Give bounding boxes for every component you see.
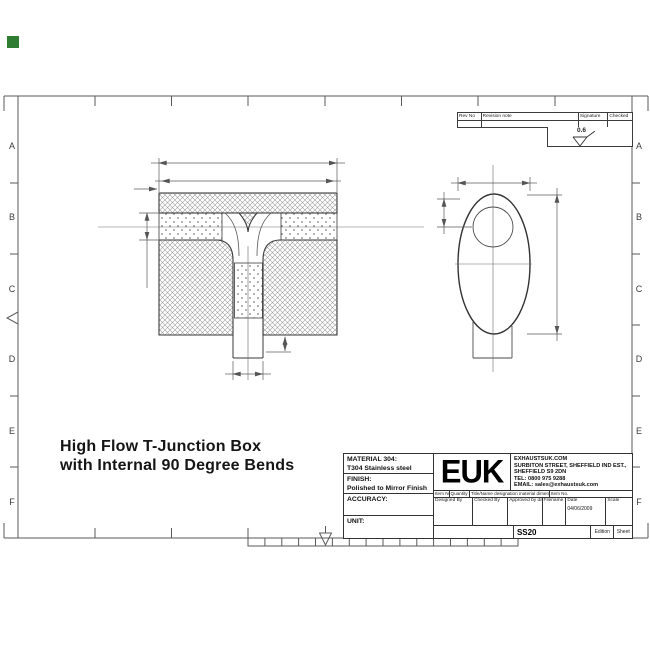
finish-cell: FINISH: Polished to Mirror Finish bbox=[344, 474, 434, 494]
row-label-c-right: C bbox=[633, 284, 645, 294]
company-email: EMAIL: sales@exhaustsuk.com bbox=[514, 482, 632, 489]
designed-by-cell: Designed By bbox=[434, 498, 473, 525]
finish-label: FINISH: bbox=[347, 476, 434, 485]
row-label-a-right: A bbox=[633, 141, 645, 151]
row-label-f-left: F bbox=[6, 497, 18, 507]
bottom-centering-mark bbox=[320, 533, 332, 545]
company-info: EXHAUSTSUK.COM SURBITON STREET, SHEFFIEL… bbox=[511, 454, 632, 491]
material-cell: MATERIAL 304: T304 Stainless steel bbox=[344, 454, 434, 474]
revision-note-header: Revision note bbox=[482, 113, 578, 121]
drawing-title-line2: with Internal 90 Degree Bends bbox=[60, 456, 294, 475]
sheet-label: Sheet bbox=[617, 529, 630, 535]
quantity-header: Quantity bbox=[450, 491, 470, 497]
row-label-f-right: F bbox=[633, 497, 645, 507]
surface-finish-box: 0.6 bbox=[547, 127, 633, 147]
edition-cell: Edition bbox=[591, 526, 614, 538]
technical-drawing-canvas bbox=[0, 0, 650, 650]
row-label-b-right: B bbox=[633, 212, 645, 222]
bottom-empty-cell bbox=[434, 526, 514, 538]
euk-logo: EUK bbox=[441, 454, 503, 491]
drawing-title-line1: High Flow T-Junction Box bbox=[60, 437, 294, 456]
row-label-d-right: D bbox=[633, 354, 645, 364]
checked-by-cell: Checked By bbox=[473, 498, 508, 525]
approved-by-cell: Approved by date bbox=[508, 498, 542, 525]
left-bore-liner bbox=[159, 213, 222, 240]
title-block: MATERIAL 304: T304 Stainless steel FINIS… bbox=[343, 453, 633, 539]
row-label-e-left: E bbox=[6, 426, 18, 436]
company-website: EXHAUSTSUK.COM bbox=[514, 456, 632, 463]
scale-cell: Scale bbox=[606, 498, 632, 525]
row-label-c-left: C bbox=[6, 284, 18, 294]
checked-by-label: Checked By bbox=[474, 498, 500, 503]
scale-bar bbox=[248, 538, 518, 546]
drawing-sheet: A B C D E F A B C D E F Rev No Revision … bbox=[0, 0, 650, 650]
lower-body-right-hatch bbox=[263, 240, 337, 335]
filename-label: Filename bbox=[544, 498, 564, 503]
row-label-a-left: A bbox=[6, 141, 18, 151]
signature-row: Designed By Checked By Approved by date … bbox=[434, 498, 632, 526]
rev-no-header: Rev No bbox=[458, 113, 481, 121]
finish-value: Polished to Mirror Finish bbox=[347, 485, 434, 494]
vertical-bore-liner bbox=[235, 263, 263, 318]
drawing-number: SS20 bbox=[517, 528, 537, 537]
top-wall-hatch bbox=[159, 193, 337, 213]
designed-by-label: Designed By bbox=[435, 498, 462, 503]
title-block-bottom-row: SS20 Edition Sheet bbox=[434, 526, 632, 538]
filename-cell: Filename bbox=[543, 498, 567, 525]
signature-column: Signature bbox=[579, 113, 609, 127]
left-centering-mark bbox=[7, 312, 18, 324]
right-bore-liner bbox=[281, 213, 337, 240]
company-logo-box: EUK bbox=[434, 454, 511, 491]
row-label-b-left: B bbox=[6, 212, 18, 222]
unit-label: UNIT: bbox=[347, 518, 434, 527]
drawing-number-cell: SS20 bbox=[514, 526, 591, 538]
item-no-header: Item No bbox=[434, 491, 450, 497]
title-block-left-column: MATERIAL 304: T304 Stainless steel FINIS… bbox=[344, 454, 434, 538]
edition-label: Edition bbox=[595, 529, 610, 535]
accuracy-label: ACCURACY: bbox=[347, 496, 434, 505]
row-label-d-left: D bbox=[6, 354, 18, 364]
item-header-row: Item No Quantity Title/Name designation … bbox=[434, 491, 632, 498]
rev-no-column: Rev No bbox=[458, 113, 482, 127]
flow-splitter-wedge bbox=[239, 213, 257, 232]
surface-finish-icon bbox=[572, 131, 602, 147]
item-no2-header: Item No. bbox=[550, 491, 632, 497]
lower-body-left-hatch bbox=[159, 240, 233, 335]
revision-note-column: Revision note bbox=[482, 113, 579, 127]
sheet-cell: Sheet bbox=[614, 526, 632, 538]
material-value: T304 Stainless steel bbox=[347, 465, 434, 474]
company-phone: TEL: 0800 975 9288 bbox=[514, 476, 632, 483]
checked-column: Checked bbox=[608, 113, 632, 127]
title-name-header: Title/Name designation material dimensio… bbox=[470, 491, 550, 497]
company-address-1: SURBITON STREET, SHEFFIELD IND EST., bbox=[514, 463, 632, 470]
accuracy-cell: ACCURACY: bbox=[344, 494, 434, 516]
date-cell: Date 04/06/2009 bbox=[566, 498, 606, 525]
green-marker-square bbox=[7, 36, 19, 48]
drawing-title: High Flow T-Junction Box with Internal 9… bbox=[60, 437, 294, 475]
signature-header: Signature bbox=[579, 113, 608, 121]
date-value: 04/06/2009 bbox=[567, 506, 592, 512]
oval-end-view bbox=[458, 194, 530, 358]
material-label: MATERIAL 304: bbox=[347, 456, 434, 465]
row-label-e-right: E bbox=[633, 426, 645, 436]
date-label: Date bbox=[567, 498, 577, 503]
company-address-2: SHEFFIELD S9 2DN bbox=[514, 469, 632, 476]
revision-table: Rev No Revision note Signature Checked bbox=[457, 112, 633, 128]
checked-header: Checked bbox=[608, 113, 632, 121]
approved-by-label: Approved by date bbox=[509, 498, 542, 503]
scale-label: Scale bbox=[607, 498, 619, 503]
unit-cell: UNIT: bbox=[344, 516, 434, 538]
